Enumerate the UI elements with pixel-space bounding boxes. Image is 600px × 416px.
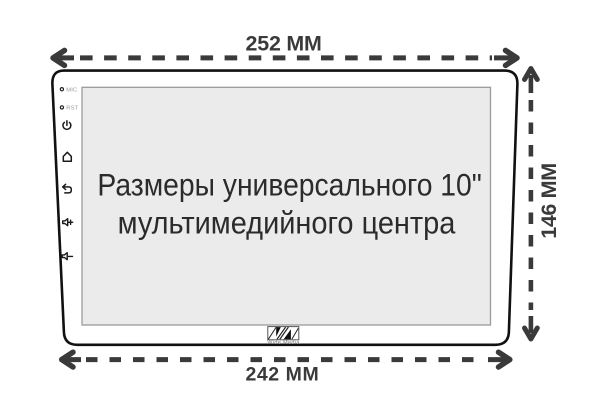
svg-text:Wide Media: Wide Media (267, 340, 300, 346)
svg-text:MIC: MIC (66, 87, 77, 93)
svg-text:RST: RST (66, 106, 78, 112)
svg-text:Размеры универсального 10": Размеры универсального 10" (97, 167, 481, 203)
svg-text:242 MM: 242 MM (246, 364, 320, 386)
svg-text:мультимедийного центра: мультимедийного центра (118, 205, 456, 241)
svg-text:252 MM: 252 MM (246, 32, 322, 56)
svg-text:146 MM: 146 MM (537, 163, 561, 239)
